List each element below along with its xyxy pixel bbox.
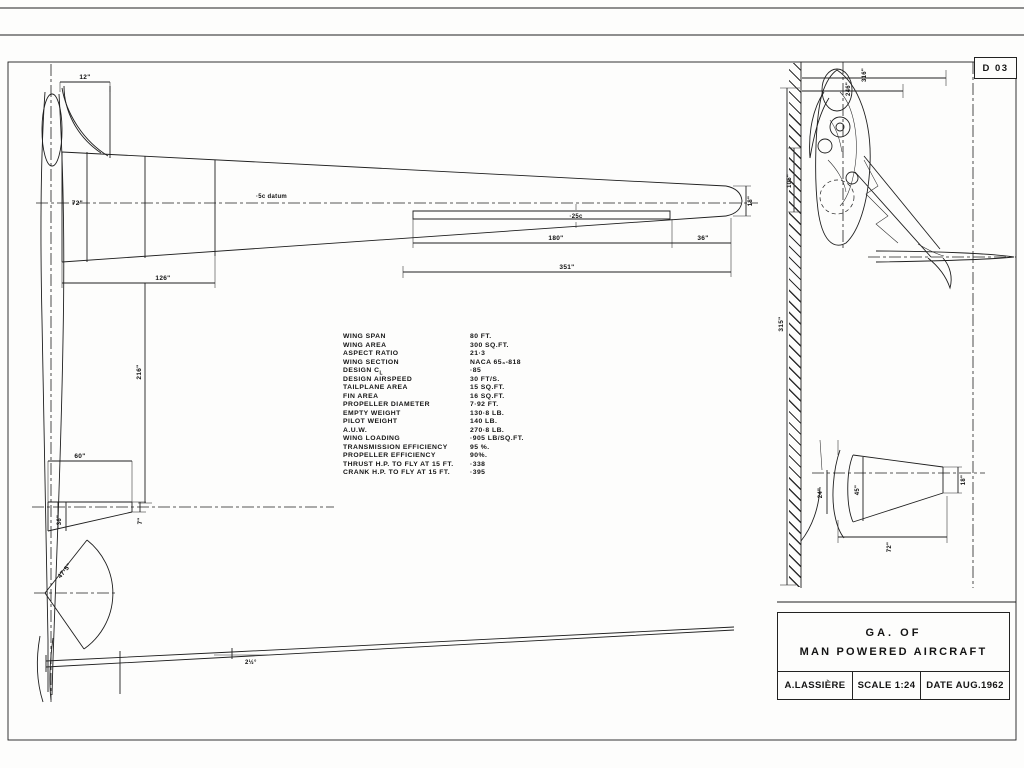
specification-table: WING SPAN 80 FT. WING AREA 300 SQ.FT. AS…: [343, 333, 548, 478]
dim-fin-rudder: 24": [818, 488, 824, 498]
spec-label: PILOT WEIGHT: [343, 418, 470, 427]
spec-value: 300 SQ.FT.: [470, 342, 548, 351]
spec-label: ASPECT RATIO: [343, 350, 470, 359]
spec-label: WING SPAN: [343, 333, 470, 342]
dim-blade-width: 12": [79, 74, 90, 81]
spec-row: WING LOADING ·905 LB/SQ.FT.: [343, 435, 548, 444]
spec-label: THRUST H.P. TO FLY AT 15 FT.: [343, 461, 470, 470]
spec-row: EMPTY WEIGHT 130·8 LB.: [343, 410, 548, 419]
spec-row: TRANSMISSION EFFICIENCY 95 %.: [343, 444, 548, 453]
dim-tailplane-span: 60": [74, 453, 85, 460]
dim-fin-tip: 18": [961, 475, 967, 485]
spec-row: DESIGN CL ·85: [343, 367, 548, 376]
spec-row: ASPECT RATIO 21·3: [343, 350, 548, 359]
spec-row: PROPELLER EFFICIENCY 90%.: [343, 452, 548, 461]
spec-value: ·905 LB/SQ.FT.: [470, 435, 548, 444]
spec-value: ·338: [470, 461, 548, 470]
spec-row: WING AREA 300 SQ.FT.: [343, 342, 548, 351]
dim-fin-root: 45": [855, 485, 861, 495]
propeller-blade-detail: 12": [60, 74, 110, 158]
fin-detail-view: 45" 24" 18" 72": [801, 440, 985, 552]
spec-label: DESIGN AIRSPEED: [343, 376, 470, 385]
datum-label: ·5c datum: [256, 194, 287, 200]
spec-row: TAILPLANE AREA 15 SQ.FT.: [343, 384, 548, 393]
dim-root-chord: 72": [72, 200, 83, 207]
spec-value: ·85: [470, 367, 548, 376]
spec-value: ·395: [470, 469, 548, 478]
dim-tailplane-tip: 7": [138, 518, 144, 525]
blueprint-sheet: 12" ·5c datum 72" 126" 216": [0, 0, 1024, 768]
spec-value: 16 SQ.FT.: [470, 393, 548, 402]
dim-fin-height: 72": [887, 542, 893, 552]
spec-value: 140 LB.: [470, 418, 548, 427]
dim-prop-radius: 47·5": [57, 562, 74, 580]
spec-label: PROPELLER EFFICIENCY: [343, 452, 470, 461]
title-block-title: GA. OF MAN POWERED AIRCRAFT: [778, 613, 1009, 672]
dim-sv-overall: 316": [862, 68, 868, 82]
spec-row: A.U.W. 270·8 LB.: [343, 427, 548, 436]
dim-outer-panel: 351": [559, 264, 574, 271]
tailplane-plan-view: 60" 36" 7": [32, 453, 334, 531]
title-block-row: A.LASSIÈRE SCALE 1:24 DATE AUG.1962: [778, 672, 1009, 699]
spec-row: DESIGN AIRSPEED 30 FT/S.: [343, 376, 548, 385]
dim-sv-length: 315": [778, 316, 785, 331]
spec-label: FIN AREA: [343, 393, 470, 402]
spec-value: 80 FT.: [470, 333, 548, 342]
spec-value: 30 FT/S.: [470, 376, 548, 385]
spec-row: PILOT WEIGHT 140 LB.: [343, 418, 548, 427]
dim-aileron-span: 180": [548, 235, 563, 242]
dim-tip-chord: 18": [748, 196, 754, 206]
spec-value: 7·92 FT.: [470, 401, 548, 410]
dim-dihedral: 2½°: [245, 659, 257, 666]
spec-row: WING SPAN 80 FT.: [343, 333, 548, 342]
dim-inner-panel: 126": [155, 275, 170, 282]
spec-value: 130·8 LB.: [470, 410, 548, 419]
spec-value: 21·3: [470, 350, 548, 359]
dim-tip-panel: 36": [697, 235, 708, 242]
spec-label: CRANK H.P. TO FLY AT 15 FT.: [343, 469, 470, 478]
fuselage-plan-view: [41, 64, 64, 702]
spec-value: 270·8 LB.: [470, 427, 548, 436]
dim-tail-arm: 216": [136, 364, 143, 379]
spec-row: FIN AREA 16 SQ.FT.: [343, 393, 548, 402]
side-elevation: 316" 246" 315" 105": [778, 62, 1016, 588]
spec-row: PROPELLER DIAMETER 7·92 FT.: [343, 401, 548, 410]
spec-label: A.U.W.: [343, 427, 470, 436]
spec-row: THRUST H.P. TO FLY AT 15 FT. ·338: [343, 461, 548, 470]
sheet-number-box: D 03: [974, 57, 1017, 79]
spec-label: WING AREA: [343, 342, 470, 351]
spec-label: DESIGN CL: [343, 367, 470, 376]
spec-label: TRANSMISSION EFFICIENCY: [343, 444, 470, 453]
spec-value: NACA 65₃-818: [470, 359, 548, 368]
spec-value: 15 SQ.FT.: [470, 384, 548, 393]
spec-value: 90%.: [470, 452, 548, 461]
sheet-number: D 03: [982, 63, 1008, 74]
author-cell: A.LASSIÈRE: [778, 672, 853, 699]
wing-front-view: 2½°: [37, 627, 734, 702]
dim-tailplane-root: 36": [57, 515, 63, 525]
title-block: GA. OF MAN POWERED AIRCRAFT A.LASSIÈRE S…: [777, 612, 1010, 700]
drawing-title-line1: GA. OF: [866, 627, 922, 639]
spec-row: WING SECTION NACA 65₃-818: [343, 359, 548, 368]
spec-label: TAILPLANE AREA: [343, 384, 470, 393]
spec-label: PROPELLER DIAMETER: [343, 401, 470, 410]
spec-label: WING SECTION: [343, 359, 470, 368]
spec-label: EMPTY WEIGHT: [343, 410, 470, 419]
drawing-title-line2: MAN POWERED AIRCRAFT: [800, 646, 988, 658]
spec-label: WING LOADING: [343, 435, 470, 444]
dim-quarter-chord: ·25c: [569, 214, 583, 220]
date-cell: DATE AUG.1962: [921, 672, 1009, 699]
scale-cell: SCALE 1:24: [853, 672, 921, 699]
hatched-datum-wall: [789, 63, 801, 587]
spec-row: CRANK H.P. TO FLY AT 15 FT. ·395: [343, 469, 548, 478]
spec-value: 95 %.: [470, 444, 548, 453]
